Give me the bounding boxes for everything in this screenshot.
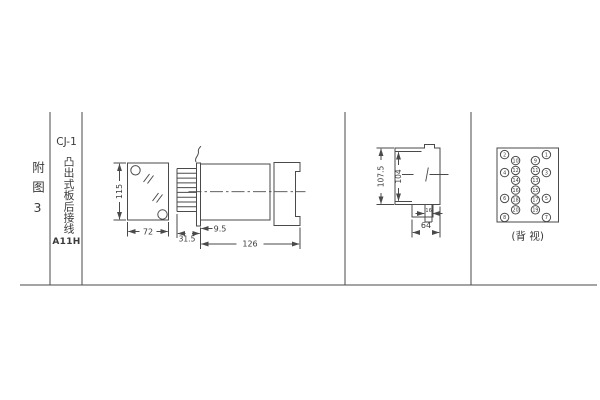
svg-text:11: 11 xyxy=(532,168,538,174)
dim-total-length: 126 xyxy=(242,240,257,249)
svg-text:13: 13 xyxy=(532,178,538,184)
figure-number-label: 附图3 xyxy=(29,161,44,222)
svg-text:12: 12 xyxy=(513,168,519,174)
svg-text:7: 7 xyxy=(545,215,548,221)
glass-hatch-mark xyxy=(144,174,154,184)
terminal-15: 15 xyxy=(531,186,539,194)
dim-rear-width: 64 xyxy=(421,221,431,230)
terminal-8: 8 xyxy=(500,213,508,221)
terminal-3: 3 xyxy=(542,168,550,176)
technical-drawing-page: 115 72 31.5 9.5 126 xyxy=(0,0,600,400)
svg-text:8: 8 xyxy=(503,215,506,221)
terminal-back-view: 2 4 6 8 10 12 14 16 18 20 9 11 13 15 17 xyxy=(497,148,559,243)
svg-text:6: 6 xyxy=(503,196,506,202)
terminal-14: 14 xyxy=(511,176,519,184)
panel-front-view: 115 72 xyxy=(114,163,169,237)
terminal-1: 1 xyxy=(542,150,550,158)
terminal-pins xyxy=(177,169,197,212)
svg-text:9: 9 xyxy=(534,158,537,164)
break-line xyxy=(196,146,201,162)
terminal-4: 4 xyxy=(500,168,508,176)
terminal-13: 13 xyxy=(531,176,539,184)
table-borders xyxy=(20,112,597,285)
terminal-9: 9 xyxy=(531,156,539,164)
svg-text:16: 16 xyxy=(513,188,519,194)
terminal-base-outline xyxy=(497,148,559,222)
relay-side-view: 31.5 9.5 126 xyxy=(177,146,306,249)
terminal-19: 19 xyxy=(531,206,539,214)
terminal-20: 20 xyxy=(511,206,519,214)
dim-rear-notch-width: 16 xyxy=(425,208,431,214)
svg-text:15: 15 xyxy=(532,188,538,194)
terminal-11: 11 xyxy=(531,166,539,174)
code-label: A11H xyxy=(51,237,82,247)
terminal-18: 18 xyxy=(511,196,519,204)
panel-screw-top-left xyxy=(131,166,140,175)
panel-screw-bottom-right xyxy=(158,210,167,219)
terminal-10: 10 xyxy=(511,156,519,164)
terminal-2: 2 xyxy=(500,150,508,158)
svg-text:14: 14 xyxy=(513,178,519,184)
svg-text:2: 2 xyxy=(503,152,506,158)
terminal-12: 12 xyxy=(511,166,519,174)
dim-panel-offset: 9.5 xyxy=(214,224,227,233)
drawing-canvas: 115 72 31.5 9.5 126 xyxy=(0,0,600,400)
mounting-plate xyxy=(197,163,201,226)
front-flange xyxy=(274,163,300,226)
svg-text:19: 19 xyxy=(532,208,538,214)
svg-text:18: 18 xyxy=(513,198,519,204)
terminal-7: 7 xyxy=(542,213,550,221)
svg-text:1: 1 xyxy=(545,152,548,158)
mounting-type-label: 凸出式板后接线 xyxy=(60,156,74,234)
svg-text:20: 20 xyxy=(513,208,519,214)
dim-rear-outer-height: 107.5 xyxy=(377,166,386,188)
terminal-17: 17 xyxy=(531,196,539,204)
dim-pin-length: 31.5 xyxy=(179,235,196,244)
terminal-16: 16 xyxy=(511,186,519,194)
back-view-caption: (背 视) xyxy=(511,230,544,243)
model-label: CJ-1 xyxy=(51,136,82,148)
svg-text:10: 10 xyxy=(513,158,519,164)
relay-rear-profile: 107.5 104 16 64 xyxy=(377,145,449,238)
svg-text:3: 3 xyxy=(545,170,548,176)
terminal-6: 6 xyxy=(500,194,508,202)
glass-hatch-mark xyxy=(153,193,163,203)
svg-text:4: 4 xyxy=(503,170,506,176)
dim-rear-inner-height: 104 xyxy=(394,169,403,184)
dim-front-width: 72 xyxy=(143,227,153,236)
svg-text:17: 17 xyxy=(532,198,538,204)
terminal-5: 5 xyxy=(542,194,550,202)
dim-front-height: 115 xyxy=(115,184,124,199)
centerline-dash xyxy=(426,168,429,182)
svg-text:5: 5 xyxy=(545,196,548,202)
